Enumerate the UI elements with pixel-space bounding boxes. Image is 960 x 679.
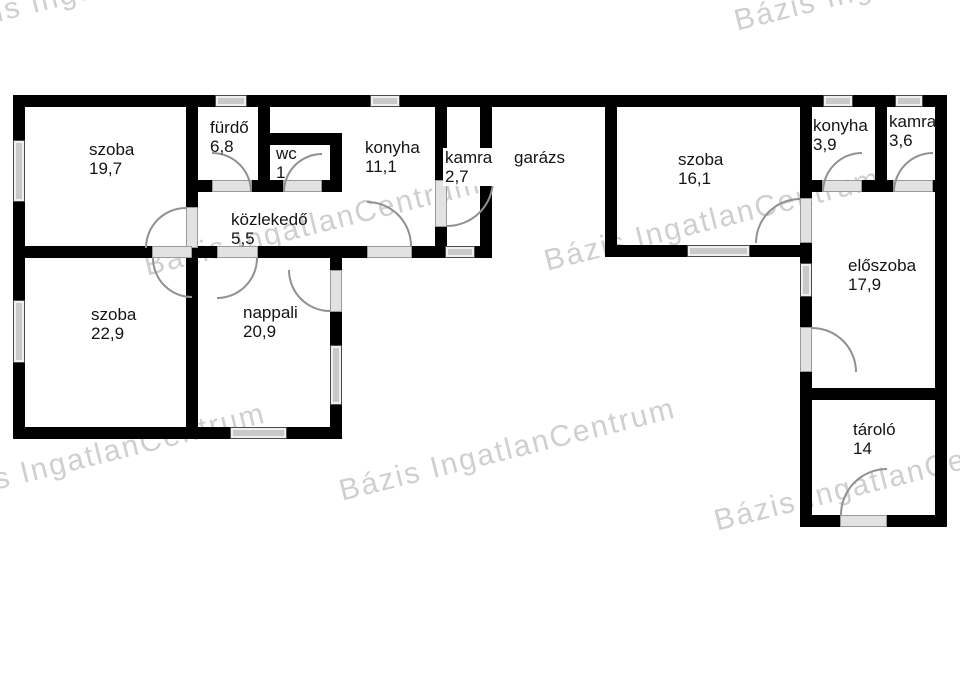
- watermark-text: Bázis IngatlanCentrum: [0, 0, 279, 43]
- room-name: előszoba: [848, 256, 916, 275]
- room-area: 20,9: [243, 322, 298, 341]
- window-marker: [13, 300, 25, 363]
- door-marker: [800, 198, 812, 243]
- room-label-eloszoba: előszoba17,9: [848, 256, 916, 294]
- room-label-szoba-161: szoba16,1: [678, 150, 723, 188]
- room-label-wc: wc1: [276, 144, 297, 182]
- room-name: szoba: [91, 305, 136, 324]
- room-name: tároló: [853, 420, 896, 439]
- room-name: konyha: [813, 116, 868, 135]
- room-name: konyha: [365, 138, 420, 157]
- room-name: fürdő: [210, 118, 249, 137]
- window-marker: [895, 95, 923, 107]
- room-label-kamra-27: kamra2,7: [443, 148, 494, 186]
- window-marker: [370, 95, 400, 107]
- room-area: 3,9: [813, 135, 868, 154]
- room-area: 11,1: [365, 157, 420, 176]
- floor-plan: Bázis IngatlanCentrumBázis IngatlanCentr…: [0, 0, 960, 679]
- room-area: 3,6: [889, 131, 936, 150]
- room-label-furdo: fürdő6,8: [210, 118, 249, 156]
- room-area: 17,9: [848, 275, 916, 294]
- room-area: 16,1: [678, 169, 723, 188]
- window-marker: [823, 95, 853, 107]
- room-area: 6,8: [210, 137, 249, 156]
- room-area: 1: [276, 163, 297, 182]
- room-name: kamra: [889, 112, 936, 131]
- wall-segment: [605, 95, 617, 257]
- door-marker: [435, 180, 447, 227]
- wall-segment: [875, 95, 887, 192]
- window-marker: [687, 245, 750, 257]
- wall-segment: [800, 95, 812, 527]
- room-label-szoba-197: szoba19,7: [89, 140, 134, 178]
- room-area: 22,9: [91, 324, 136, 343]
- door-marker: [367, 246, 412, 258]
- wall-segment: [258, 95, 270, 192]
- room-name: wc: [276, 144, 297, 163]
- room-name: nappali: [243, 303, 298, 322]
- door-swing-arc: [152, 258, 192, 298]
- room-name: szoba: [678, 150, 723, 169]
- room-name: kamra: [445, 148, 492, 167]
- window-marker: [215, 95, 247, 107]
- window-marker: [13, 140, 25, 202]
- wall-segment: [935, 95, 947, 527]
- room-area: 2,7: [445, 167, 492, 186]
- door-swing-arc: [212, 152, 252, 192]
- door-swing-arc: [812, 327, 857, 372]
- door-marker: [840, 515, 887, 527]
- room-label-szoba-229: szoba22,9: [91, 305, 136, 343]
- watermark-text: Bázis IngatlanCentrum: [336, 392, 679, 509]
- door-swing-arc: [145, 207, 186, 248]
- room-area: 19,7: [89, 159, 134, 178]
- room-label-konyha-39: konyha3,9: [813, 116, 868, 154]
- door-marker: [186, 207, 198, 248]
- wall-segment: [330, 133, 342, 192]
- watermark-text: Bázis IngatlanCentrum: [731, 0, 960, 38]
- window-marker: [445, 246, 475, 258]
- window-marker: [800, 263, 812, 297]
- room-name: közlekedő: [231, 210, 308, 229]
- room-label-tarolo: tároló14: [853, 420, 896, 458]
- room-label-garazs: garázs: [514, 148, 565, 167]
- room-label-konyha-111: konyha11,1: [365, 138, 420, 176]
- window-marker: [230, 427, 287, 439]
- watermark-text: Bázis IngatlanCentrum: [0, 397, 269, 514]
- room-label-kamra-36: kamra3,6: [889, 112, 936, 150]
- wall-segment: [13, 427, 342, 439]
- window-marker: [330, 345, 342, 405]
- room-area: 14: [853, 439, 896, 458]
- door-marker: [800, 327, 812, 372]
- door-marker: [330, 270, 342, 312]
- room-label-kozlekedo: közlekedő5,5: [231, 210, 308, 248]
- wall-segment: [800, 388, 947, 400]
- room-name: garázs: [514, 148, 565, 167]
- door-swing-arc: [822, 152, 862, 192]
- room-area: 5,5: [231, 229, 308, 248]
- room-name: szoba: [89, 140, 134, 159]
- door-swing-arc: [217, 258, 258, 299]
- door-swing-arc: [893, 152, 933, 192]
- room-label-nappali: nappali20,9: [243, 303, 298, 341]
